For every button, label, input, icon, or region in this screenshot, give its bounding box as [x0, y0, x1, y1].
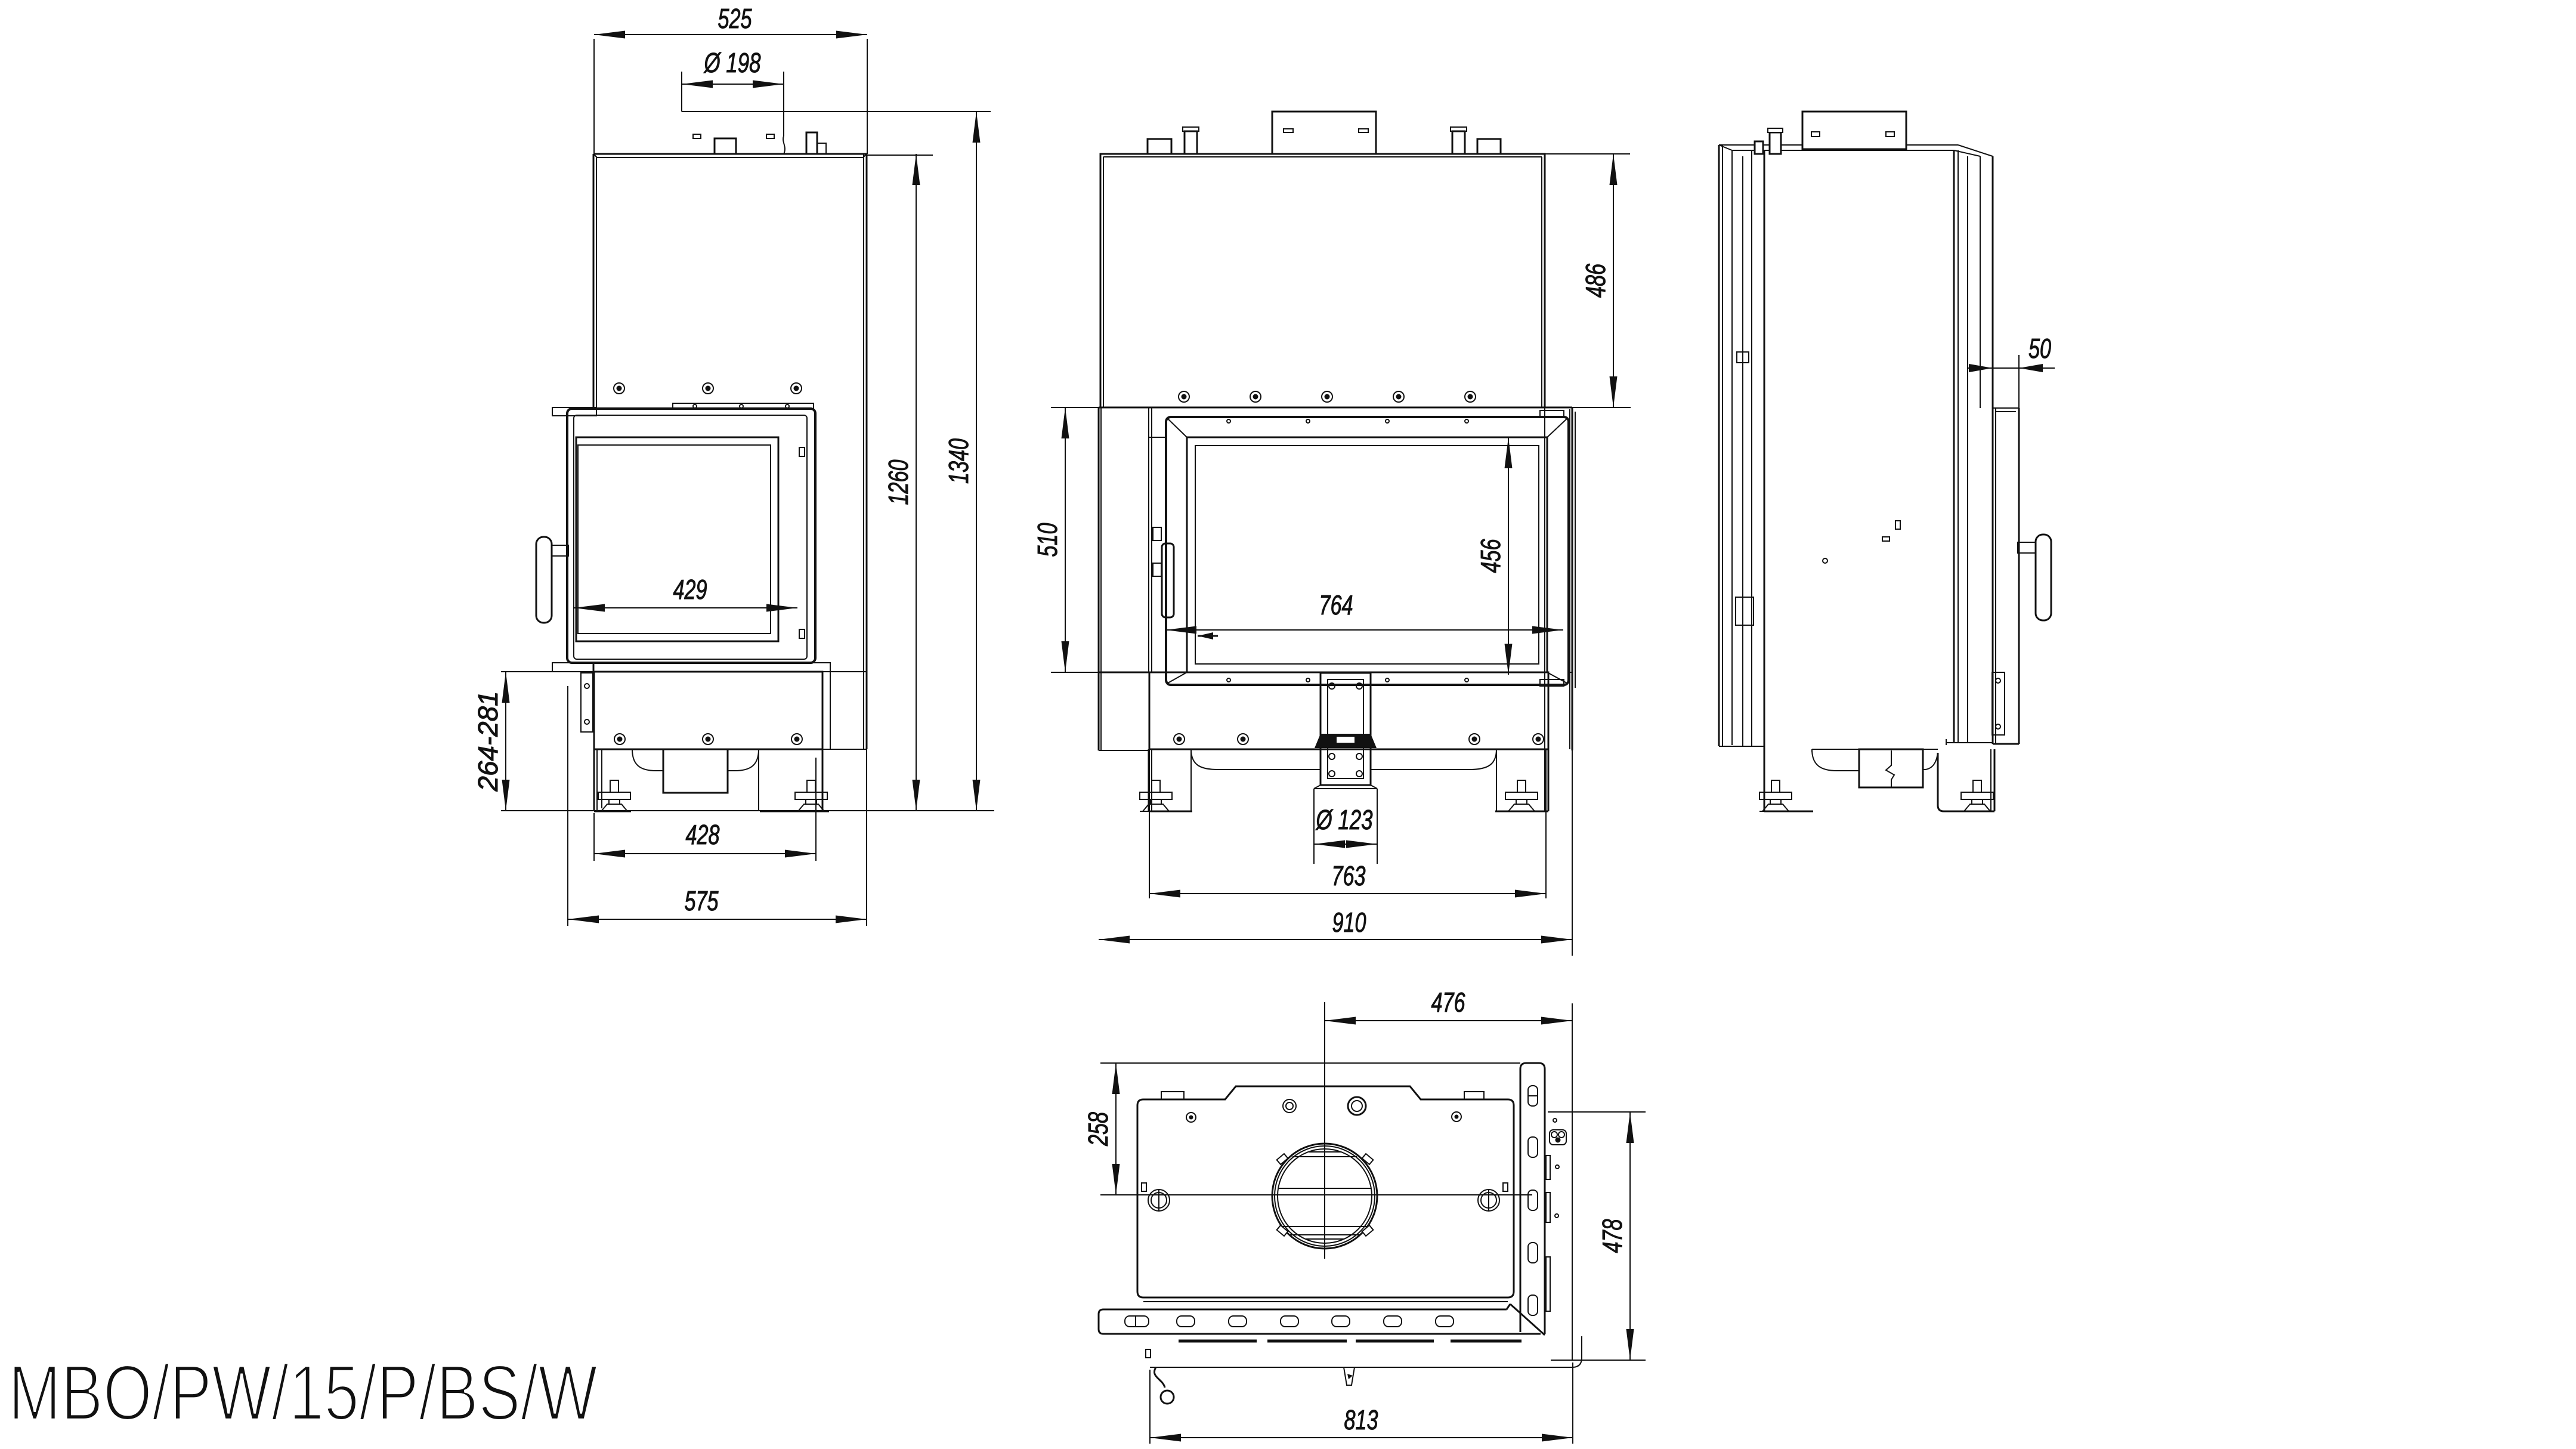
svg-text:575: 575	[685, 885, 719, 916]
svg-text:Ø 198: Ø 198	[703, 47, 761, 78]
svg-text:486: 486	[1580, 264, 1611, 298]
svg-text:478: 478	[1597, 1219, 1628, 1253]
svg-text:763: 763	[1332, 860, 1366, 891]
svg-text:510: 510	[1032, 523, 1063, 557]
svg-text:525: 525	[718, 3, 752, 34]
svg-text:1260: 1260	[883, 459, 914, 505]
svg-text:429: 429	[673, 574, 707, 605]
svg-text:MBO/PW/15/P/BS/W: MBO/PW/15/P/BS/W	[8, 1349, 598, 1436]
svg-text:813: 813	[1344, 1404, 1378, 1435]
svg-text:476: 476	[1431, 987, 1465, 1018]
svg-text:258: 258	[1083, 1112, 1114, 1147]
svg-text:428: 428	[686, 819, 720, 850]
svg-text:264-281: 264-281	[472, 691, 503, 792]
svg-text:1340: 1340	[943, 438, 974, 484]
svg-text:Ø 123: Ø 123	[1315, 804, 1373, 835]
svg-text:910: 910	[1332, 907, 1366, 938]
svg-text:456: 456	[1475, 539, 1506, 573]
svg-text:764: 764	[1319, 589, 1353, 620]
svg-text:50: 50	[2028, 333, 2051, 364]
